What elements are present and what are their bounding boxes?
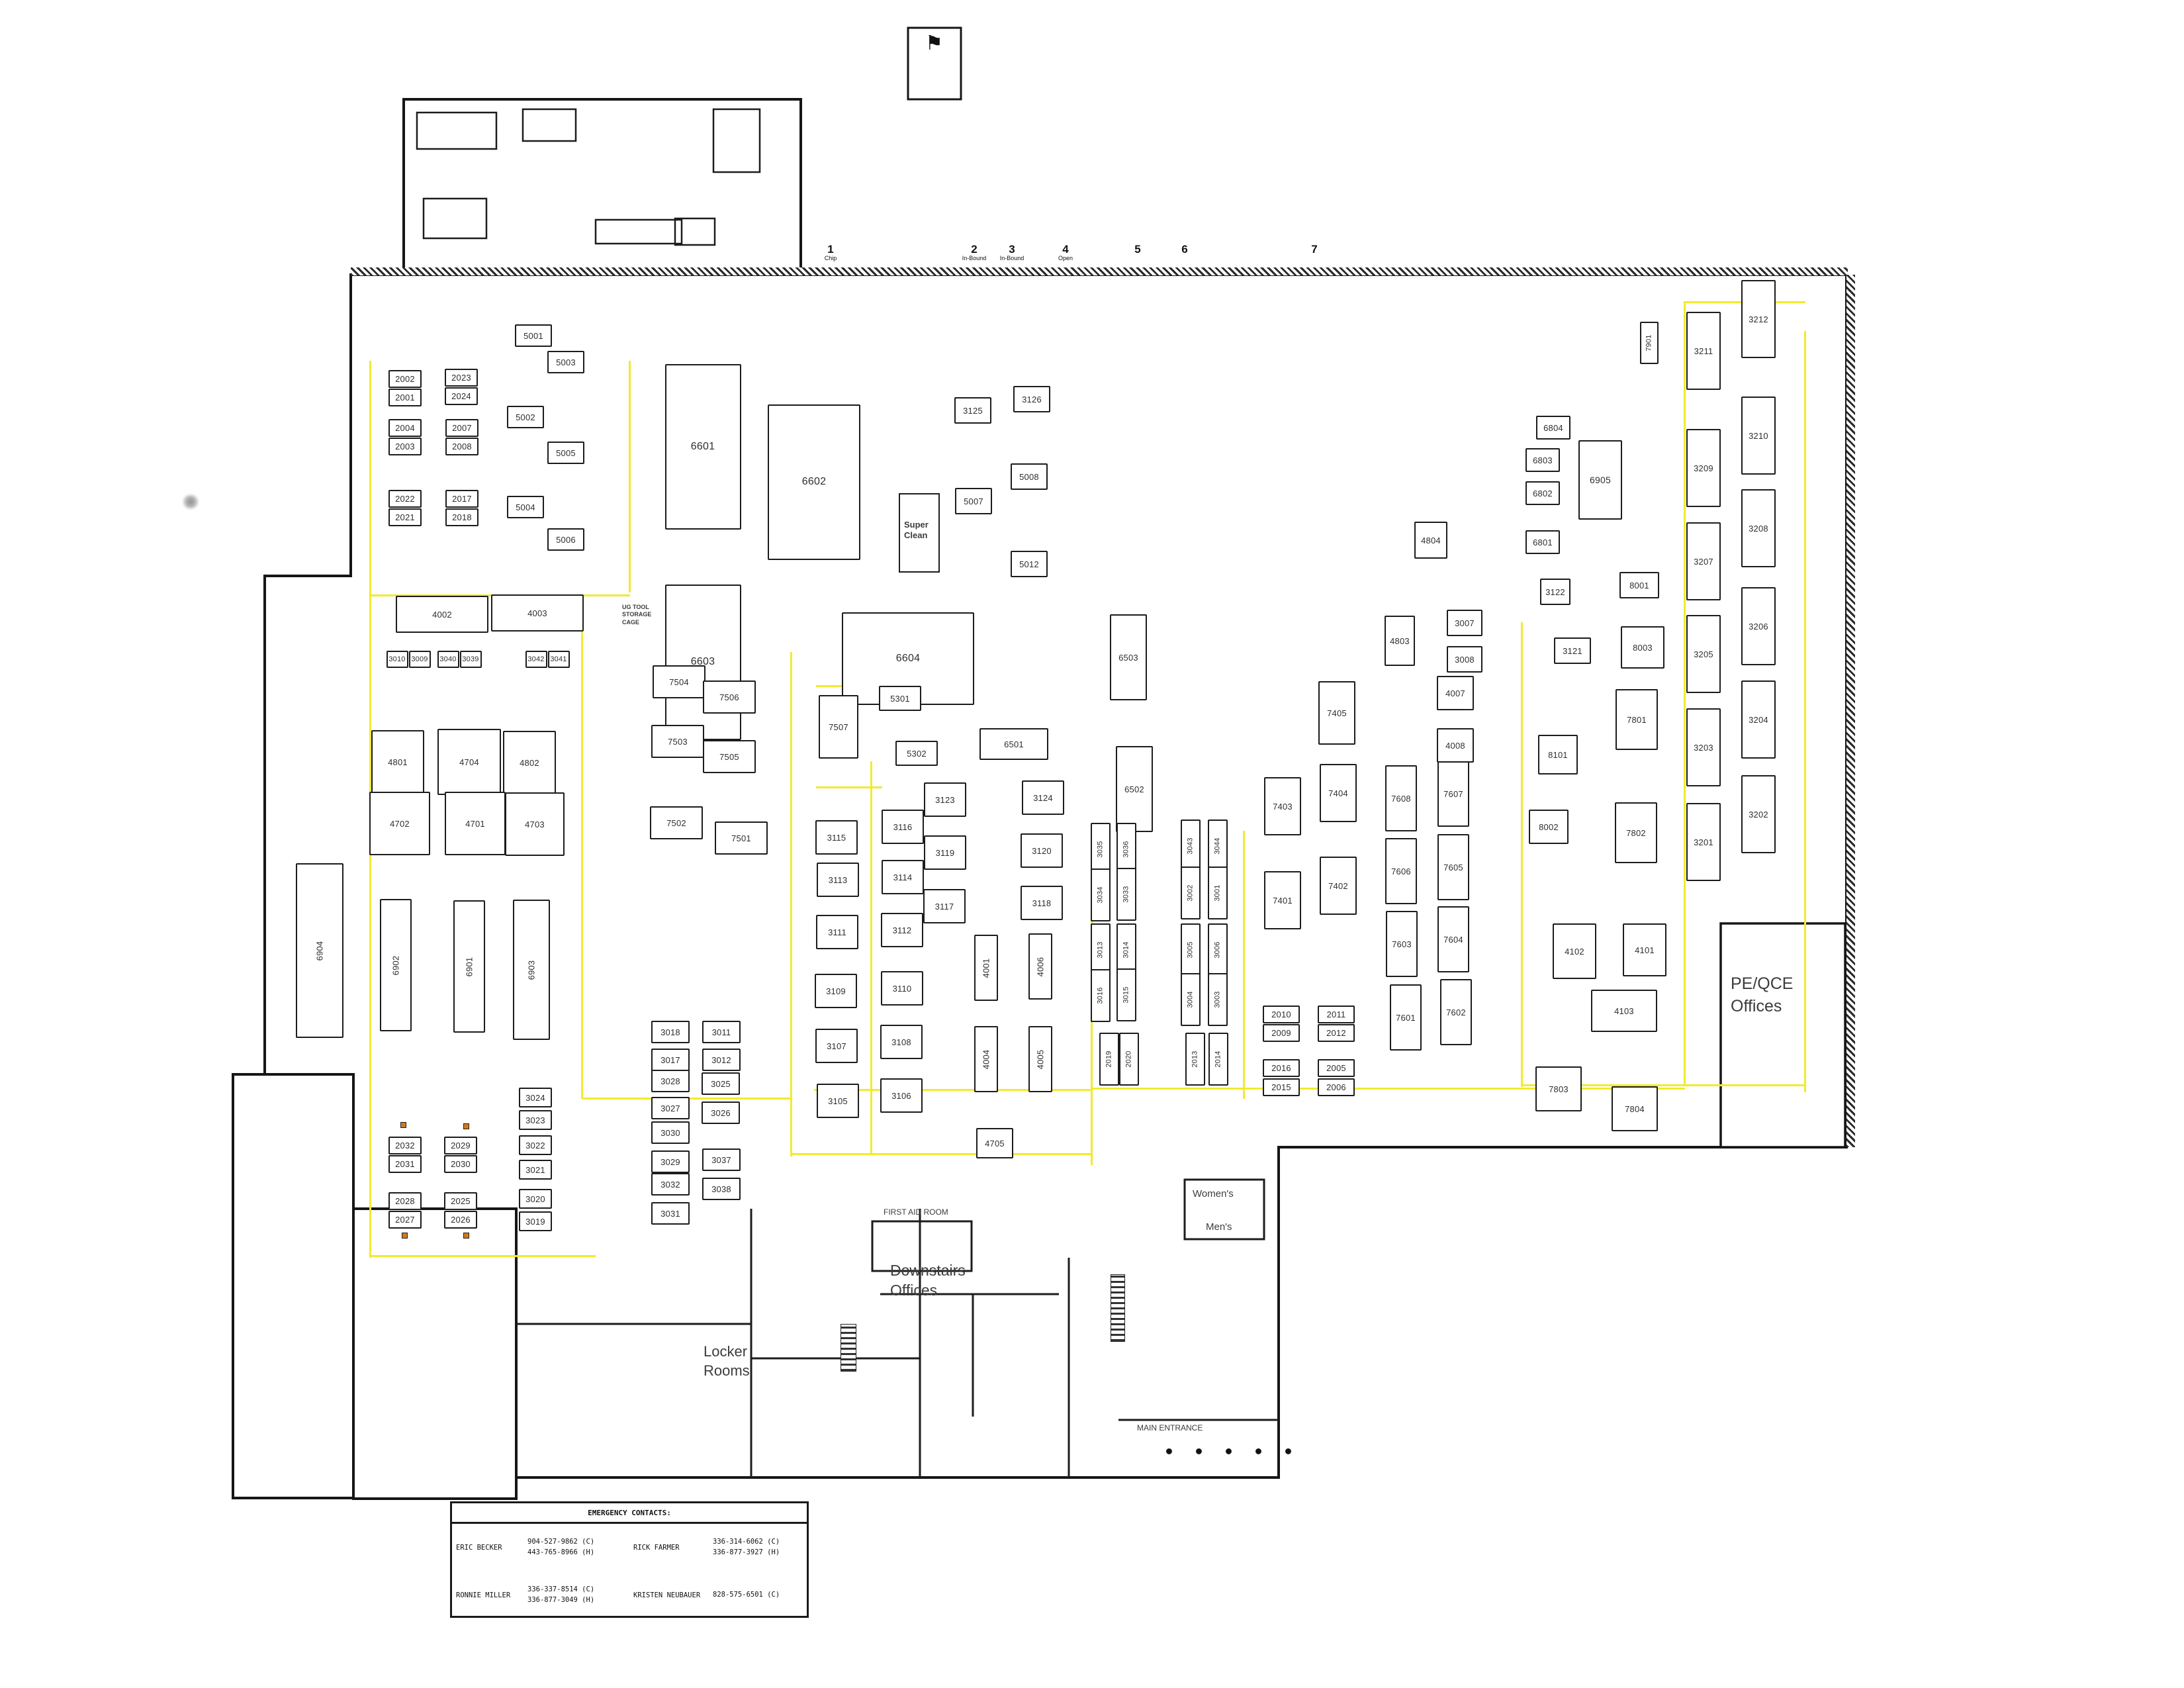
machine-3023: 3023: [519, 1110, 552, 1130]
machine-7403: 7403: [1264, 777, 1301, 835]
floor-marker-dot: [463, 1123, 469, 1129]
machine-4702: 4702: [369, 792, 430, 855]
bollard-dot: [1255, 1448, 1261, 1454]
machine-3040: 3040: [437, 651, 459, 668]
bollard-dot: [1226, 1448, 1232, 1454]
dock-label-4: 4Open: [1058, 244, 1073, 262]
machine-3115: 3115: [815, 820, 858, 855]
machine-5007: 5007: [955, 488, 992, 514]
machine-3210: 3210: [1741, 397, 1776, 475]
machine-2002: 2002: [388, 370, 422, 388]
machine-3035: 3035: [1091, 823, 1111, 876]
machine-7801: 7801: [1615, 689, 1658, 750]
machine-8001: 8001: [1619, 572, 1659, 598]
machine-2019: 2019: [1099, 1033, 1119, 1086]
machine-2032: 2032: [388, 1137, 422, 1154]
machine-6802: 6802: [1525, 481, 1560, 505]
machine-2031: 2031: [388, 1155, 422, 1173]
machine-3032: 3032: [651, 1173, 690, 1196]
machine-6903: 6903: [513, 900, 550, 1040]
room-label-mens: Men's: [1206, 1221, 1232, 1233]
machine-6603: 6603: [665, 585, 741, 740]
machine-3008: 3008: [1447, 646, 1482, 673]
machine-2018: 2018: [445, 508, 478, 526]
machine-2029: 2029: [444, 1137, 477, 1154]
machine-4006: 4006: [1028, 933, 1052, 1000]
pe-qce-room: [1721, 923, 1845, 1147]
room-label-ug-tool-storage-cage: UG TOOL STORAGE CAGE: [622, 604, 651, 626]
machine-7506: 7506: [703, 680, 756, 714]
contact-phones: 828-575-6501 (C): [713, 1571, 812, 1619]
machine-4804: 4804: [1414, 522, 1447, 559]
machine-5008: 5008: [1011, 463, 1048, 490]
bollard-dot: [1285, 1448, 1291, 1454]
machine-7507: 7507: [819, 695, 858, 759]
walkway-line: [816, 786, 882, 788]
machine-2021: 2021: [388, 508, 422, 526]
walkway-line: [790, 652, 792, 1156]
room-label-womens: Women's: [1193, 1188, 1234, 1199]
machine-3025: 3025: [702, 1072, 740, 1095]
machine-4001: 4001: [974, 935, 998, 1001]
contact-phones: 904-527-9862 (C)443-765-8966 (H): [527, 1524, 633, 1571]
machine-3002: 3002: [1181, 867, 1201, 919]
walkway-line: [1092, 1088, 1685, 1090]
machine-5001: 5001: [515, 324, 552, 347]
machine-7802: 7802: [1615, 802, 1657, 863]
machine-4103: 4103: [1591, 990, 1657, 1032]
machine-7901: 7901: [1640, 322, 1659, 364]
machine-3017: 3017: [651, 1049, 690, 1071]
machine-3033: 3033: [1116, 868, 1136, 921]
machine-3041: 3041: [548, 651, 570, 668]
machine-8003: 8003: [1621, 626, 1664, 669]
breakroom-annex: [404, 99, 801, 275]
dock-label-7: 7: [1311, 244, 1317, 255]
machine-2030: 2030: [444, 1155, 477, 1173]
walkway-line: [1804, 331, 1806, 1092]
machine-3016: 3016: [1091, 969, 1111, 1022]
machine-2014: 2014: [1208, 1033, 1228, 1086]
floor-marker-dot: [402, 1233, 408, 1239]
machine-6502: 6502: [1116, 746, 1153, 832]
machine-7804: 7804: [1612, 1086, 1658, 1131]
walkway-line: [629, 361, 631, 592]
machine-3120: 3120: [1021, 833, 1063, 868]
machine-6503: 6503: [1110, 614, 1147, 700]
bollard-dot: [1196, 1448, 1202, 1454]
machine-4002: 4002: [396, 596, 488, 633]
walkway-line: [1521, 622, 1523, 1087]
machine-2024: 2024: [445, 387, 478, 405]
machine-2004: 2004: [388, 419, 422, 437]
machine-3209: 3209: [1686, 429, 1721, 507]
floor-marker-dot: [463, 1233, 469, 1239]
machine-3208: 3208: [1741, 489, 1776, 567]
contact-phones: 336-337-8514 (C)336-877-3049 (H): [527, 1571, 633, 1619]
exterior-wall-hatch-top: [351, 267, 1848, 275]
machine-3034: 3034: [1091, 868, 1111, 921]
room-label-locker-rooms: Locker Rooms: [704, 1342, 750, 1380]
dock-label-6: 6: [1181, 244, 1187, 255]
floor-marker-dot: [400, 1122, 406, 1128]
machine-4004: 4004: [974, 1026, 998, 1092]
machine-3117: 3117: [923, 889, 966, 923]
machine-7608: 7608: [1385, 765, 1417, 831]
machine-2016: 2016: [1263, 1059, 1300, 1077]
machine-6804: 6804: [1536, 416, 1570, 440]
machine-7602: 7602: [1440, 979, 1472, 1045]
machine-3121: 3121: [1554, 637, 1591, 664]
machine-2027: 2027: [388, 1211, 422, 1229]
room-label-first-aid: FIRST AID ROOM: [884, 1207, 948, 1217]
contact-name: RICK FARMER: [633, 1524, 713, 1571]
machine-7803: 7803: [1535, 1066, 1582, 1111]
machine-5302: 5302: [895, 741, 938, 766]
stairs: [841, 1324, 856, 1372]
machine-3038: 3038: [702, 1178, 741, 1200]
machine-3030: 3030: [651, 1121, 690, 1144]
machine-7604: 7604: [1437, 906, 1469, 972]
machine-3207: 3207: [1686, 522, 1721, 600]
machine-3124: 3124: [1022, 780, 1064, 815]
machine-6904: 6904: [296, 863, 343, 1038]
machine-2025: 2025: [444, 1192, 477, 1210]
machine-7606: 7606: [1385, 838, 1417, 904]
dock-label-1: 1Chip: [825, 244, 837, 262]
machine-5301: 5301: [879, 686, 921, 711]
flag-icon: ⚑: [925, 32, 943, 55]
machine-2010: 2010: [1263, 1006, 1300, 1023]
machine-7607: 7607: [1437, 761, 1469, 827]
machine-6801: 6801: [1525, 530, 1560, 554]
machine-4803: 4803: [1385, 616, 1415, 666]
machine-2022: 2022: [388, 490, 422, 508]
machine-7404: 7404: [1320, 764, 1357, 822]
machine-2023: 2023: [445, 369, 478, 387]
machine-4701: 4701: [445, 792, 506, 855]
machine-3019: 3019: [519, 1211, 552, 1231]
machine-7504: 7504: [653, 665, 705, 698]
machine-4003: 4003: [491, 594, 584, 632]
machine-3212: 3212: [1741, 280, 1776, 358]
walkway-line: [1684, 301, 1686, 1086]
machine-3116: 3116: [882, 810, 924, 844]
machine-2020: 2020: [1119, 1033, 1139, 1086]
machine-3015: 3015: [1116, 968, 1136, 1021]
contact-name: RONNIE MILLER: [456, 1571, 527, 1619]
machine-3205: 3205: [1686, 615, 1721, 693]
machine-6601: 6601: [665, 364, 741, 530]
exterior-wall-hatch-right: [1846, 275, 1855, 1147]
contact-name: KRISTEN NEUBAUER: [633, 1571, 713, 1619]
room-label-pe-qce: PE/QCE Offices: [1731, 973, 1793, 1018]
machine-3123: 3123: [924, 782, 966, 817]
machine-4802: 4802: [503, 731, 556, 794]
machine-3204: 3204: [1741, 680, 1776, 759]
machine-3029: 3029: [651, 1150, 690, 1173]
machine-3203: 3203: [1686, 708, 1721, 786]
machine-7401: 7401: [1264, 871, 1301, 929]
machine-4005: 4005: [1028, 1026, 1052, 1092]
machine-7502: 7502: [650, 806, 703, 839]
machine-3006: 3006: [1208, 923, 1228, 976]
machine-3113: 3113: [817, 863, 859, 897]
machine-3114: 3114: [882, 860, 924, 894]
machine-3042: 3042: [525, 651, 547, 668]
machine-5003: 5003: [547, 351, 584, 373]
machine-2012: 2012: [1318, 1024, 1355, 1042]
left-storage-room: [233, 1074, 353, 1498]
machine-3112: 3112: [881, 913, 923, 947]
machine-3201: 3201: [1686, 803, 1721, 881]
emergency-contacts-table: EMERGENCY CONTACTS: ERIC BECKER 904-527-…: [450, 1501, 809, 1618]
smudge-mark: [182, 494, 199, 509]
contact-phones: 336-314-6062 (C)336-877-3927 (H): [713, 1524, 812, 1571]
machine-8002: 8002: [1529, 810, 1569, 844]
stairs: [1111, 1274, 1125, 1342]
bollard-dot: [1166, 1448, 1172, 1454]
machine-7503: 7503: [651, 725, 704, 758]
machine-7605: 7605: [1437, 834, 1469, 900]
machine-2005: 2005: [1318, 1059, 1355, 1077]
machine-3119: 3119: [924, 835, 966, 870]
machine-7402: 7402: [1320, 857, 1357, 915]
machine-2006: 2006: [1318, 1078, 1355, 1096]
machine-7603: 7603: [1386, 911, 1418, 977]
machine-2028: 2028: [388, 1192, 422, 1210]
machine-2007: 2007: [445, 419, 478, 437]
machine-3043: 3043: [1181, 820, 1201, 872]
machine-3005: 3005: [1181, 923, 1201, 976]
machine-3024: 3024: [519, 1088, 552, 1107]
machine-3028: 3028: [651, 1070, 690, 1092]
machine-7501: 7501: [715, 821, 768, 855]
walkway-line: [581, 596, 583, 1099]
machine-5005: 5005: [547, 442, 584, 464]
machine-3211: 3211: [1686, 312, 1721, 390]
walkway-line: [870, 761, 872, 1155]
machine-4008: 4008: [1437, 728, 1474, 763]
machine-2011: 2011: [1318, 1006, 1355, 1023]
machine-3107: 3107: [815, 1029, 858, 1063]
dock-label-5: 5: [1134, 244, 1140, 255]
machine-3021: 3021: [519, 1160, 552, 1180]
machine-3027: 3027: [651, 1097, 690, 1119]
machine-4007: 4007: [1437, 676, 1474, 710]
machine-3013: 3013: [1091, 923, 1111, 976]
machine-6901: 6901: [453, 900, 485, 1033]
machine-3202: 3202: [1741, 775, 1776, 853]
machine-4102: 4102: [1553, 923, 1596, 979]
machine-2013: 2013: [1185, 1033, 1205, 1086]
machine-2009: 2009: [1263, 1024, 1300, 1042]
machine-3044: 3044: [1208, 820, 1228, 872]
machine-3105: 3105: [817, 1084, 859, 1118]
machine-3022: 3022: [519, 1135, 552, 1155]
machine-3206: 3206: [1741, 587, 1776, 665]
machine-3010: 3010: [387, 651, 408, 668]
machine-6803: 6803: [1525, 448, 1560, 472]
machine-4703: 4703: [505, 792, 565, 856]
machine-7601: 7601: [1390, 984, 1422, 1051]
machine-3111: 3111: [816, 915, 858, 949]
machine-8101: 8101: [1538, 735, 1578, 774]
machine-3011: 3011: [702, 1021, 741, 1043]
machine-3118: 3118: [1021, 886, 1063, 920]
machine-6501: 6501: [979, 728, 1048, 760]
machine-4705: 4705: [976, 1128, 1013, 1158]
machine-7505: 7505: [703, 740, 756, 773]
emergency-contacts-title: EMERGENCY CONTACTS:: [452, 1503, 807, 1524]
machine-3106: 3106: [880, 1078, 923, 1113]
machine-6905: 6905: [1578, 440, 1622, 520]
machine-3003: 3003: [1208, 973, 1228, 1026]
walkway-line: [792, 1153, 1092, 1155]
machine-3126: 3126: [1013, 386, 1050, 412]
machine-3125: 3125: [954, 397, 991, 424]
machine-3020: 3020: [519, 1189, 552, 1209]
machine-3109: 3109: [815, 974, 857, 1008]
machine-3026: 3026: [702, 1102, 740, 1124]
left-lower-room: [353, 1209, 516, 1499]
machine-3122: 3122: [1540, 579, 1570, 605]
machine-5002: 5002: [507, 406, 544, 428]
walkway-line: [1243, 831, 1245, 1099]
room-label-main-entrance: MAIN ENTRANCE: [1137, 1423, 1203, 1432]
machine-2015: 2015: [1263, 1078, 1300, 1096]
machine-3007: 3007: [1447, 610, 1482, 636]
machine-2008: 2008: [445, 438, 478, 455]
machine-6902: 6902: [380, 899, 412, 1031]
machine-3039: 3039: [460, 651, 482, 668]
machine-3110: 3110: [881, 971, 923, 1006]
machine-3001: 3001: [1208, 867, 1228, 919]
machine-3031: 3031: [651, 1202, 690, 1225]
machine-5006: 5006: [547, 528, 584, 551]
machine-4801: 4801: [371, 730, 424, 794]
machine-2026: 2026: [444, 1211, 477, 1229]
machine-2001: 2001: [388, 389, 422, 406]
dock-label-2: 2In-Bound: [962, 244, 987, 262]
machine-3037: 3037: [702, 1149, 741, 1171]
machine-5012: 5012: [1011, 551, 1048, 577]
machine-2003: 2003: [388, 438, 422, 455]
room-label-downstairs-offices: Downstairs Offices: [890, 1261, 966, 1301]
machine-4704: 4704: [437, 729, 501, 795]
walkway-line: [371, 1255, 596, 1257]
machine-3012: 3012: [702, 1049, 741, 1071]
machine-7405: 7405: [1318, 681, 1355, 745]
contact-name: ERIC BECKER: [456, 1524, 527, 1571]
machine-4101: 4101: [1623, 923, 1666, 976]
room-label-super-clean: Super Clean: [899, 493, 940, 573]
machine-3009: 3009: [409, 651, 431, 668]
machine-2017: 2017: [445, 490, 478, 508]
machine-6602: 6602: [768, 404, 860, 560]
machine-5004: 5004: [507, 496, 544, 518]
dock-label-3: 3In-Bound: [1000, 244, 1024, 262]
machine-3004: 3004: [1181, 973, 1201, 1026]
machine-3108: 3108: [880, 1025, 923, 1059]
facility-floor-plan: ⚑ PE/QCE Offices FIRST AID ROOM Downstai…: [0, 0, 2184, 1688]
machine-3018: 3018: [651, 1021, 690, 1043]
